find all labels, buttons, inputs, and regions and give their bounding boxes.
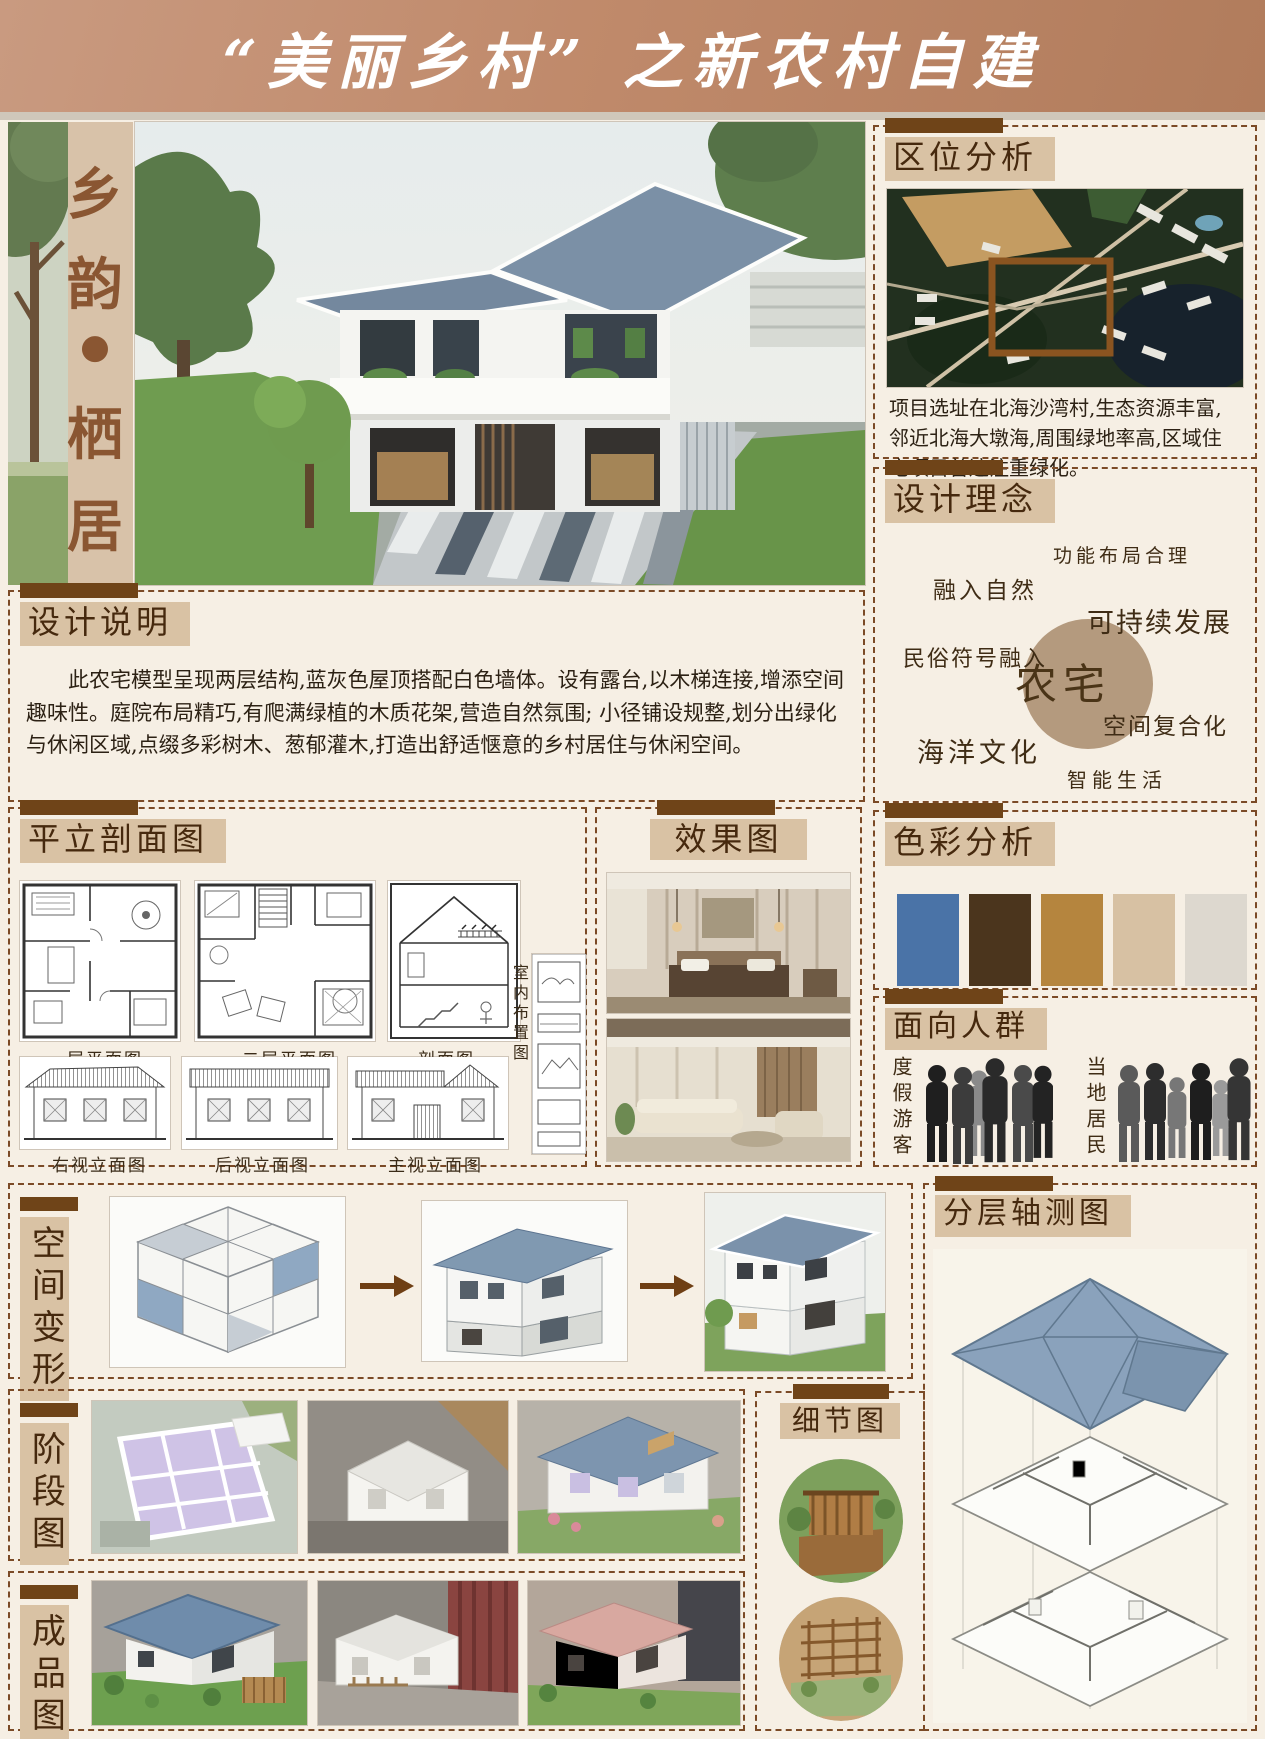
finished-photo-2 xyxy=(318,1581,518,1725)
concept-keyword: 可持续发展 xyxy=(1087,601,1232,640)
drawing-label: 主视立面图 xyxy=(388,1151,483,1176)
finished-photo-3 xyxy=(528,1581,740,1725)
section-tab xyxy=(885,118,1003,133)
palette-swatch xyxy=(1185,894,1247,986)
section-notes: 设计说明 此农宅模型呈现两层结构,蓝灰色屋顶搭配白色墙体。设有露台,以木梯连接,… xyxy=(8,590,865,802)
stage-photo-2 xyxy=(308,1401,508,1553)
section-tab xyxy=(20,1403,78,1417)
section-colors: 色彩分析 xyxy=(873,810,1257,990)
render-living-photo xyxy=(607,1019,850,1161)
render-bedroom-photo xyxy=(607,873,850,1013)
elevation-front-drawing xyxy=(348,1057,508,1149)
palette-swatch xyxy=(1041,894,1103,986)
arrow-icon xyxy=(638,1273,696,1299)
page-title: “美丽乡村” 之新农村自建 xyxy=(0,14,1265,101)
floor-plan-1-drawing xyxy=(20,881,180,1041)
locals-photo xyxy=(1115,1044,1251,1164)
detail-photo-2 xyxy=(779,1597,903,1721)
drawing-label-interior: 室内布置图 xyxy=(507,964,531,1064)
header-banner: “美丽乡村” 之新农村自建 xyxy=(0,0,1265,112)
header-divider xyxy=(0,112,1265,120)
section-tab xyxy=(657,800,775,815)
section-drawing xyxy=(388,881,520,1041)
section-transform: 空间变形 xyxy=(8,1183,913,1379)
palette-swatch xyxy=(1113,894,1175,986)
side-char: 栖 xyxy=(60,390,130,471)
section-transform-head: 空间变形 xyxy=(20,1197,80,1401)
section-finished-head: 成品图 xyxy=(20,1585,80,1739)
finished-photo-1 xyxy=(92,1581,307,1725)
section-tab xyxy=(20,1197,78,1211)
final-render-diagram xyxy=(705,1193,885,1371)
palette-swatch xyxy=(969,894,1031,986)
palette-swatch xyxy=(897,894,959,986)
concept-keyword: 功能布局合理 xyxy=(1053,541,1191,568)
drawing-label: 后视立面图 xyxy=(215,1151,310,1176)
section-details: 细节图 xyxy=(755,1391,925,1731)
section-tab xyxy=(20,583,138,598)
elevation-back-drawing xyxy=(182,1057,337,1149)
side-banner: 乡 韵 ● 栖 居 xyxy=(8,122,133,585)
satellite-map-image xyxy=(887,189,1243,387)
section-tab xyxy=(885,989,1003,1004)
section-axon-title: 分层轴测图 xyxy=(935,1195,1131,1237)
tree-photo-strip xyxy=(8,122,68,585)
tourists-photo xyxy=(921,1044,1053,1164)
side-char: 乡 xyxy=(60,150,130,231)
section-tab xyxy=(935,1176,1053,1191)
detail-photo-1 xyxy=(779,1459,903,1583)
section-location-title: 区位分析 xyxy=(885,137,1055,181)
stage-photo-3 xyxy=(518,1401,740,1553)
section-stages-head: 阶段图 xyxy=(20,1403,80,1565)
section-details-title: 细节图 xyxy=(780,1403,900,1439)
floor-plan-2-drawing xyxy=(195,881,375,1041)
concept-keyword: 民俗符号融入 xyxy=(903,641,1047,673)
section-drawings: 平立剖面图 一层平面图 xyxy=(8,807,587,1167)
section-stages-title: 阶段图 xyxy=(20,1423,69,1565)
side-char: 居 xyxy=(60,482,130,563)
interior-layout-drawing xyxy=(532,954,586,1154)
section-renders: 效果图 xyxy=(595,807,862,1167)
section-renders-title: 效果图 xyxy=(650,819,806,860)
poster: “美丽乡村” 之新农村自建 乡 韵 ● 栖 居 xyxy=(0,0,1265,1739)
section-location: 区位分析 xyxy=(873,125,1257,459)
side-char: 韵 xyxy=(60,240,130,321)
concept-keyword: 空间复合化 xyxy=(1103,707,1228,741)
section-finished-title: 成品图 xyxy=(20,1605,69,1739)
massing-model-diagram xyxy=(422,1201,627,1361)
section-transform-title: 空间变形 xyxy=(20,1217,69,1401)
axonometric-drawing xyxy=(933,1249,1247,1723)
audience-group-label: 当地居民 xyxy=(1081,1056,1110,1160)
elevation-right-drawing xyxy=(20,1057,170,1149)
section-drawings-title: 平立剖面图 xyxy=(20,819,226,863)
section-tab xyxy=(20,800,138,815)
section-stages: 阶段图 xyxy=(8,1389,745,1561)
concept-keyword: 智能生活 xyxy=(1067,764,1167,793)
notes-text: 此农宅模型呈现两层结构,蓝灰色屋顶搭配白色墙体。设有露台,以木梯连接,增添空间趣… xyxy=(26,664,852,762)
stage-photo-1 xyxy=(92,1401,297,1553)
section-audience: 面向人群 度假游客 当地居民 xyxy=(873,996,1257,1167)
concept-keyword: 融入自然 xyxy=(933,571,1037,605)
cube-wireframe-diagram xyxy=(110,1197,345,1367)
audience-group-label: 度假游客 xyxy=(887,1056,916,1160)
section-concept: 设计理念 农宅 功能布局合理 融入自然 可持续发展 民俗符号融入 空间复合化 海… xyxy=(873,467,1257,803)
section-concept-title: 设计理念 xyxy=(885,479,1055,523)
section-tab xyxy=(20,1585,78,1599)
section-tab xyxy=(885,460,1003,475)
drawing-label: 右视立面图 xyxy=(52,1151,147,1176)
section-tab xyxy=(793,1384,889,1399)
section-axon: 分层轴测图 xyxy=(923,1183,1257,1731)
section-finished: 成品图 xyxy=(8,1571,745,1731)
section-notes-title: 设计说明 xyxy=(20,602,190,646)
section-colors-title: 色彩分析 xyxy=(885,822,1055,866)
section-tab xyxy=(885,803,1003,818)
arrow-icon xyxy=(358,1273,416,1299)
concept-keyword: 海洋文化 xyxy=(917,731,1041,770)
side-char-dot: ● xyxy=(60,327,130,367)
hero-house-photo xyxy=(135,122,865,585)
